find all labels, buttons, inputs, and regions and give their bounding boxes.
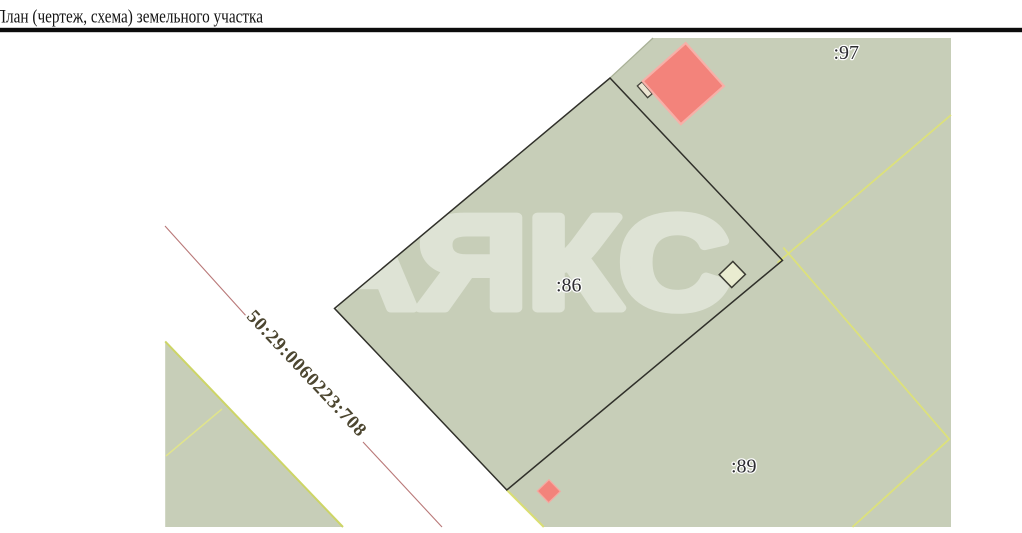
- svg-text::89: :89: [731, 455, 757, 477]
- svg-text:План (чертеж, схема) земельног: План (чертеж, схема) земельного участка: [0, 7, 263, 28]
- svg-text::86: :86: [556, 275, 582, 297]
- svg-text::97: :97: [834, 42, 860, 64]
